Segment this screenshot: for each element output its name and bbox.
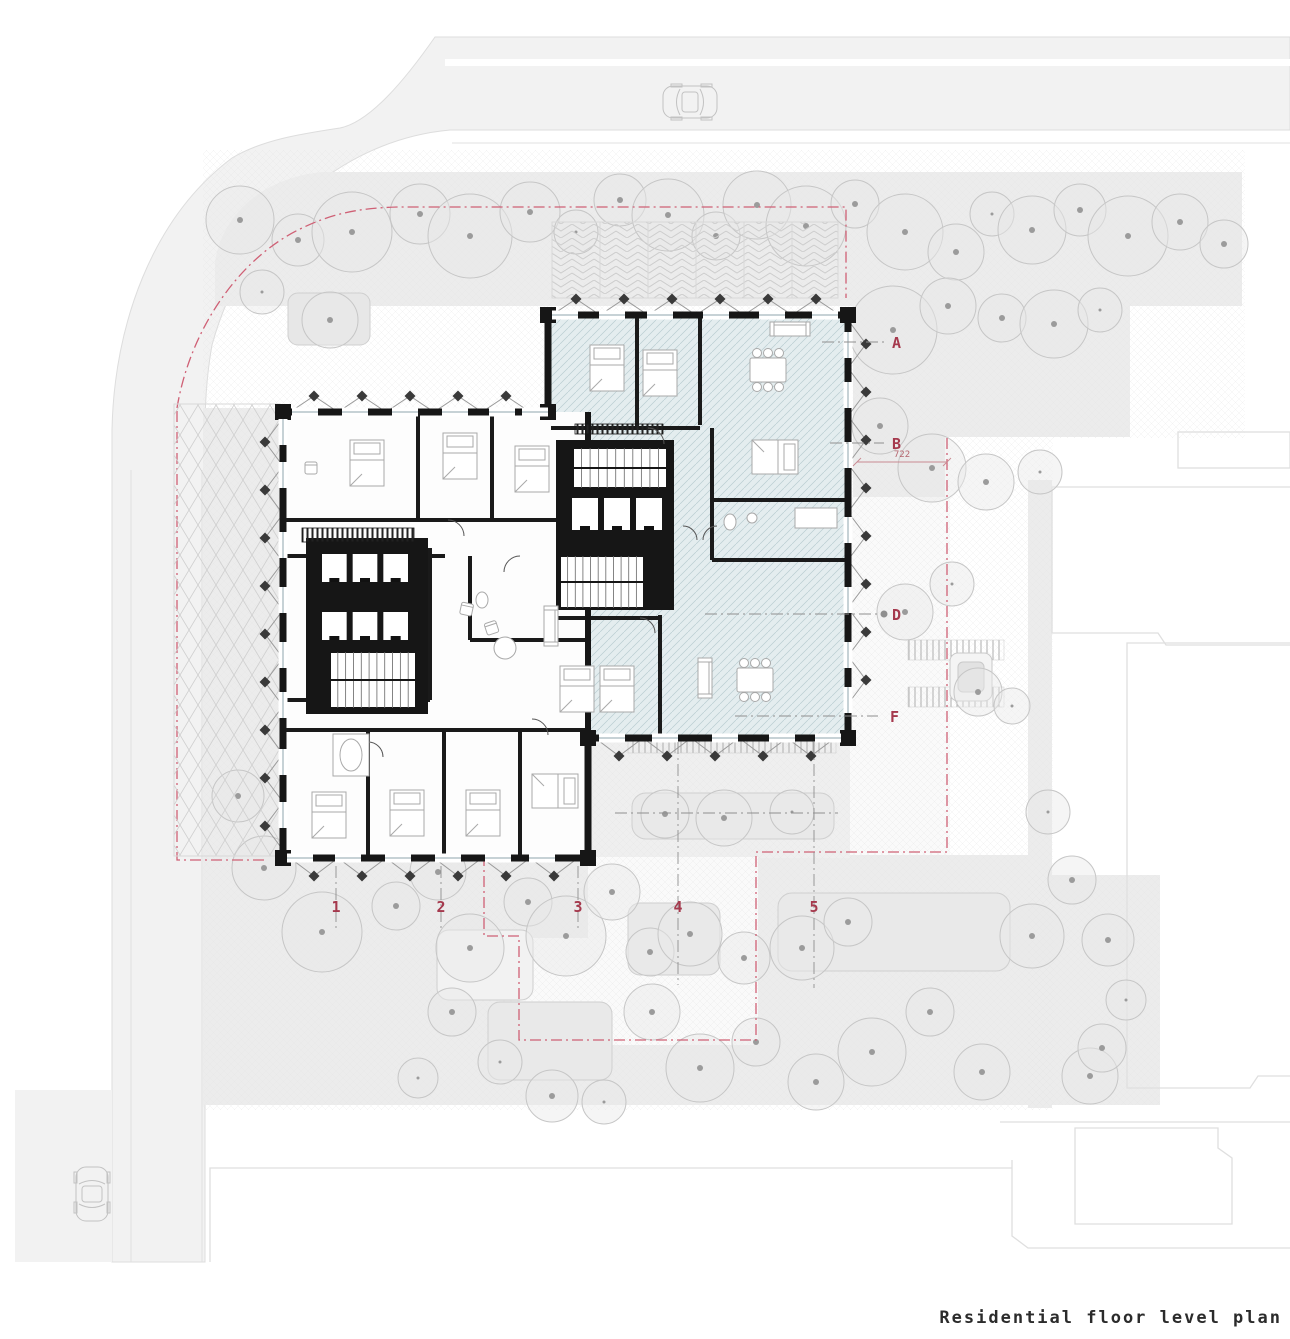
- tree-trunk-dot: [877, 423, 883, 429]
- tree-trunk-dot: [1099, 309, 1102, 312]
- tree-trunk-dot: [741, 955, 747, 961]
- neighbor-building: [1052, 487, 1290, 645]
- floor-plan-canvas: A B D F 1 2 3 4 5 722 Residential floor …: [0, 0, 1290, 1339]
- tree-trunk-dot: [945, 303, 951, 309]
- elevator-shaft: [604, 498, 630, 530]
- tree-trunk-dot: [927, 1009, 933, 1015]
- tree-trunk-dot: [662, 811, 668, 817]
- tree-trunk-dot: [687, 931, 693, 937]
- grid-col-label-3: 3: [573, 898, 582, 916]
- tree-trunk-dot: [902, 229, 908, 235]
- tree-trunk-dot: [975, 689, 981, 695]
- bed-icon: [600, 666, 634, 712]
- closet-strip: [302, 528, 414, 542]
- dimension-value: 722: [894, 450, 910, 460]
- elevator-door: [391, 578, 401, 582]
- toilet-icon: [476, 592, 488, 608]
- elevator-shaft: [636, 498, 662, 530]
- neighbor-building: [1012, 1160, 1290, 1248]
- tree-trunk-dot: [527, 209, 533, 215]
- tree-trunk-dot: [1011, 705, 1014, 708]
- tree-trunk-dot: [665, 212, 671, 218]
- road-widening: [15, 1090, 112, 1262]
- closet-strip: [575, 424, 663, 434]
- tree-trunk-dot: [327, 317, 333, 323]
- tree-trunk-dot: [999, 315, 1005, 321]
- tree-trunk-dot: [525, 899, 531, 905]
- elevator-door: [360, 636, 370, 640]
- chair-icon: [460, 602, 474, 616]
- dining-table-icon: [750, 349, 786, 392]
- elevator-door: [329, 578, 339, 582]
- tree-trunk-dot: [929, 465, 935, 471]
- elevator-door: [644, 526, 654, 530]
- tree-trunk-dot: [435, 869, 441, 875]
- chair-icon: [305, 462, 317, 474]
- bed-icon: [350, 440, 384, 486]
- tree-trunk-dot: [813, 1079, 819, 1085]
- bed-icon: [752, 440, 798, 474]
- tree-trunk-dot: [617, 197, 623, 203]
- bed-icon: [532, 774, 578, 808]
- tree-trunk-dot: [869, 1049, 875, 1055]
- tree-trunk-dot: [1105, 937, 1111, 943]
- sofa-icon: [698, 658, 712, 698]
- tree-trunk-dot: [319, 929, 325, 935]
- grid-row-label-a: A: [892, 334, 901, 352]
- bathtub-icon: [795, 508, 837, 528]
- grid-col-label-5: 5: [809, 898, 818, 916]
- tree-trunk-dot: [1077, 207, 1083, 213]
- road-center-stripe: [445, 59, 1290, 66]
- tree-trunk-dot: [902, 609, 908, 615]
- tree-trunk-dot: [1125, 999, 1128, 1002]
- elevator-shaft: [383, 554, 408, 582]
- tree-trunk-dot: [261, 865, 267, 871]
- neighbor-building: [210, 1168, 1012, 1262]
- elevator-shaft: [572, 498, 598, 530]
- site-plan-svg: A B D F 1 2 3 4 5 722: [0, 0, 1290, 1339]
- tree-trunk-dot: [1125, 233, 1131, 239]
- tree-trunk-dot: [609, 889, 615, 895]
- bed-icon: [643, 350, 677, 396]
- tree-trunk-dot: [467, 945, 473, 951]
- tree-trunk-dot: [1099, 1045, 1105, 1051]
- tree-trunk-dot: [845, 919, 851, 925]
- tree-trunk-dot: [799, 945, 805, 951]
- tree-trunk-dot: [499, 1061, 502, 1064]
- elevator-door: [329, 636, 339, 640]
- tree-trunk-dot: [467, 233, 473, 239]
- toilet-icon: [724, 514, 736, 530]
- drawing-title: Residential floor level plan: [939, 1308, 1282, 1328]
- elevator-shaft: [353, 554, 378, 582]
- tree-trunk-dot: [237, 217, 243, 223]
- tree-trunk-dot: [697, 1065, 703, 1071]
- tree-trunk-dot: [852, 201, 858, 207]
- tree-trunk-dot: [1087, 1073, 1093, 1079]
- bed-icon: [312, 792, 346, 838]
- elevator-shaft: [322, 612, 347, 640]
- grid-row-label-d: D: [892, 606, 901, 624]
- tree-trunk-dot: [393, 903, 399, 909]
- bed-icon: [590, 345, 624, 391]
- tree-trunk-dot: [261, 291, 264, 294]
- elevator-door: [391, 636, 401, 640]
- tree-trunk-dot: [549, 1093, 555, 1099]
- tree-trunk-dot: [1029, 227, 1035, 233]
- tree-trunk-dot: [890, 327, 896, 333]
- tree-trunk-dot: [449, 1009, 455, 1015]
- grid-col-label-4: 4: [673, 898, 682, 916]
- tree-trunk-dot: [295, 237, 301, 243]
- neighbor-building: [1075, 1128, 1232, 1224]
- grid-line-dot: [881, 611, 888, 618]
- elevator-shaft: [353, 612, 378, 640]
- bed-icon: [443, 433, 477, 479]
- tree-trunk-dot: [349, 229, 355, 235]
- roof-canopy-north: [552, 222, 838, 298]
- elevator-shaft: [322, 554, 347, 582]
- elevator-door: [360, 578, 370, 582]
- bed-icon: [466, 790, 500, 836]
- tree-trunk-dot: [721, 815, 727, 821]
- sofa-icon: [544, 606, 558, 646]
- dining-table-icon: [737, 659, 773, 702]
- grid-col-label-2: 2: [436, 898, 445, 916]
- grid-row-label-f: F: [890, 708, 899, 726]
- tree-trunk-dot: [1047, 811, 1050, 814]
- tree-trunk-dot: [647, 949, 653, 955]
- elevator-door: [612, 526, 622, 530]
- tree-trunk-dot: [1069, 877, 1075, 883]
- tree-trunk-dot: [1051, 321, 1057, 327]
- tree-trunk-dot: [417, 211, 423, 217]
- tree-trunk-dot: [603, 1101, 606, 1104]
- bed-icon: [560, 666, 594, 712]
- tree-trunk-dot: [1039, 471, 1042, 474]
- tree-trunk-dot: [983, 479, 989, 485]
- bathtub-icon: [340, 739, 362, 771]
- tree-trunk-dot: [417, 1077, 420, 1080]
- sink-icon: [747, 513, 757, 523]
- tree-trunk-dot: [991, 213, 994, 216]
- tree-trunk-dot: [649, 1009, 655, 1015]
- table-icon: [494, 637, 516, 659]
- tree-trunk-dot: [979, 1069, 985, 1075]
- tree-trunk-dot: [1221, 241, 1227, 247]
- bed-icon: [515, 446, 549, 492]
- tree-trunk-dot: [1029, 933, 1035, 939]
- sofa-icon: [770, 322, 810, 336]
- elevator-shaft: [383, 612, 408, 640]
- grid-col-label-1: 1: [331, 898, 340, 916]
- tree-trunk-dot: [563, 933, 569, 939]
- elevator-door: [580, 526, 590, 530]
- tree-trunk-dot: [953, 249, 959, 255]
- tree-trunk-dot: [951, 583, 954, 586]
- tree-trunk-dot: [1177, 219, 1183, 225]
- bed-icon: [390, 790, 424, 836]
